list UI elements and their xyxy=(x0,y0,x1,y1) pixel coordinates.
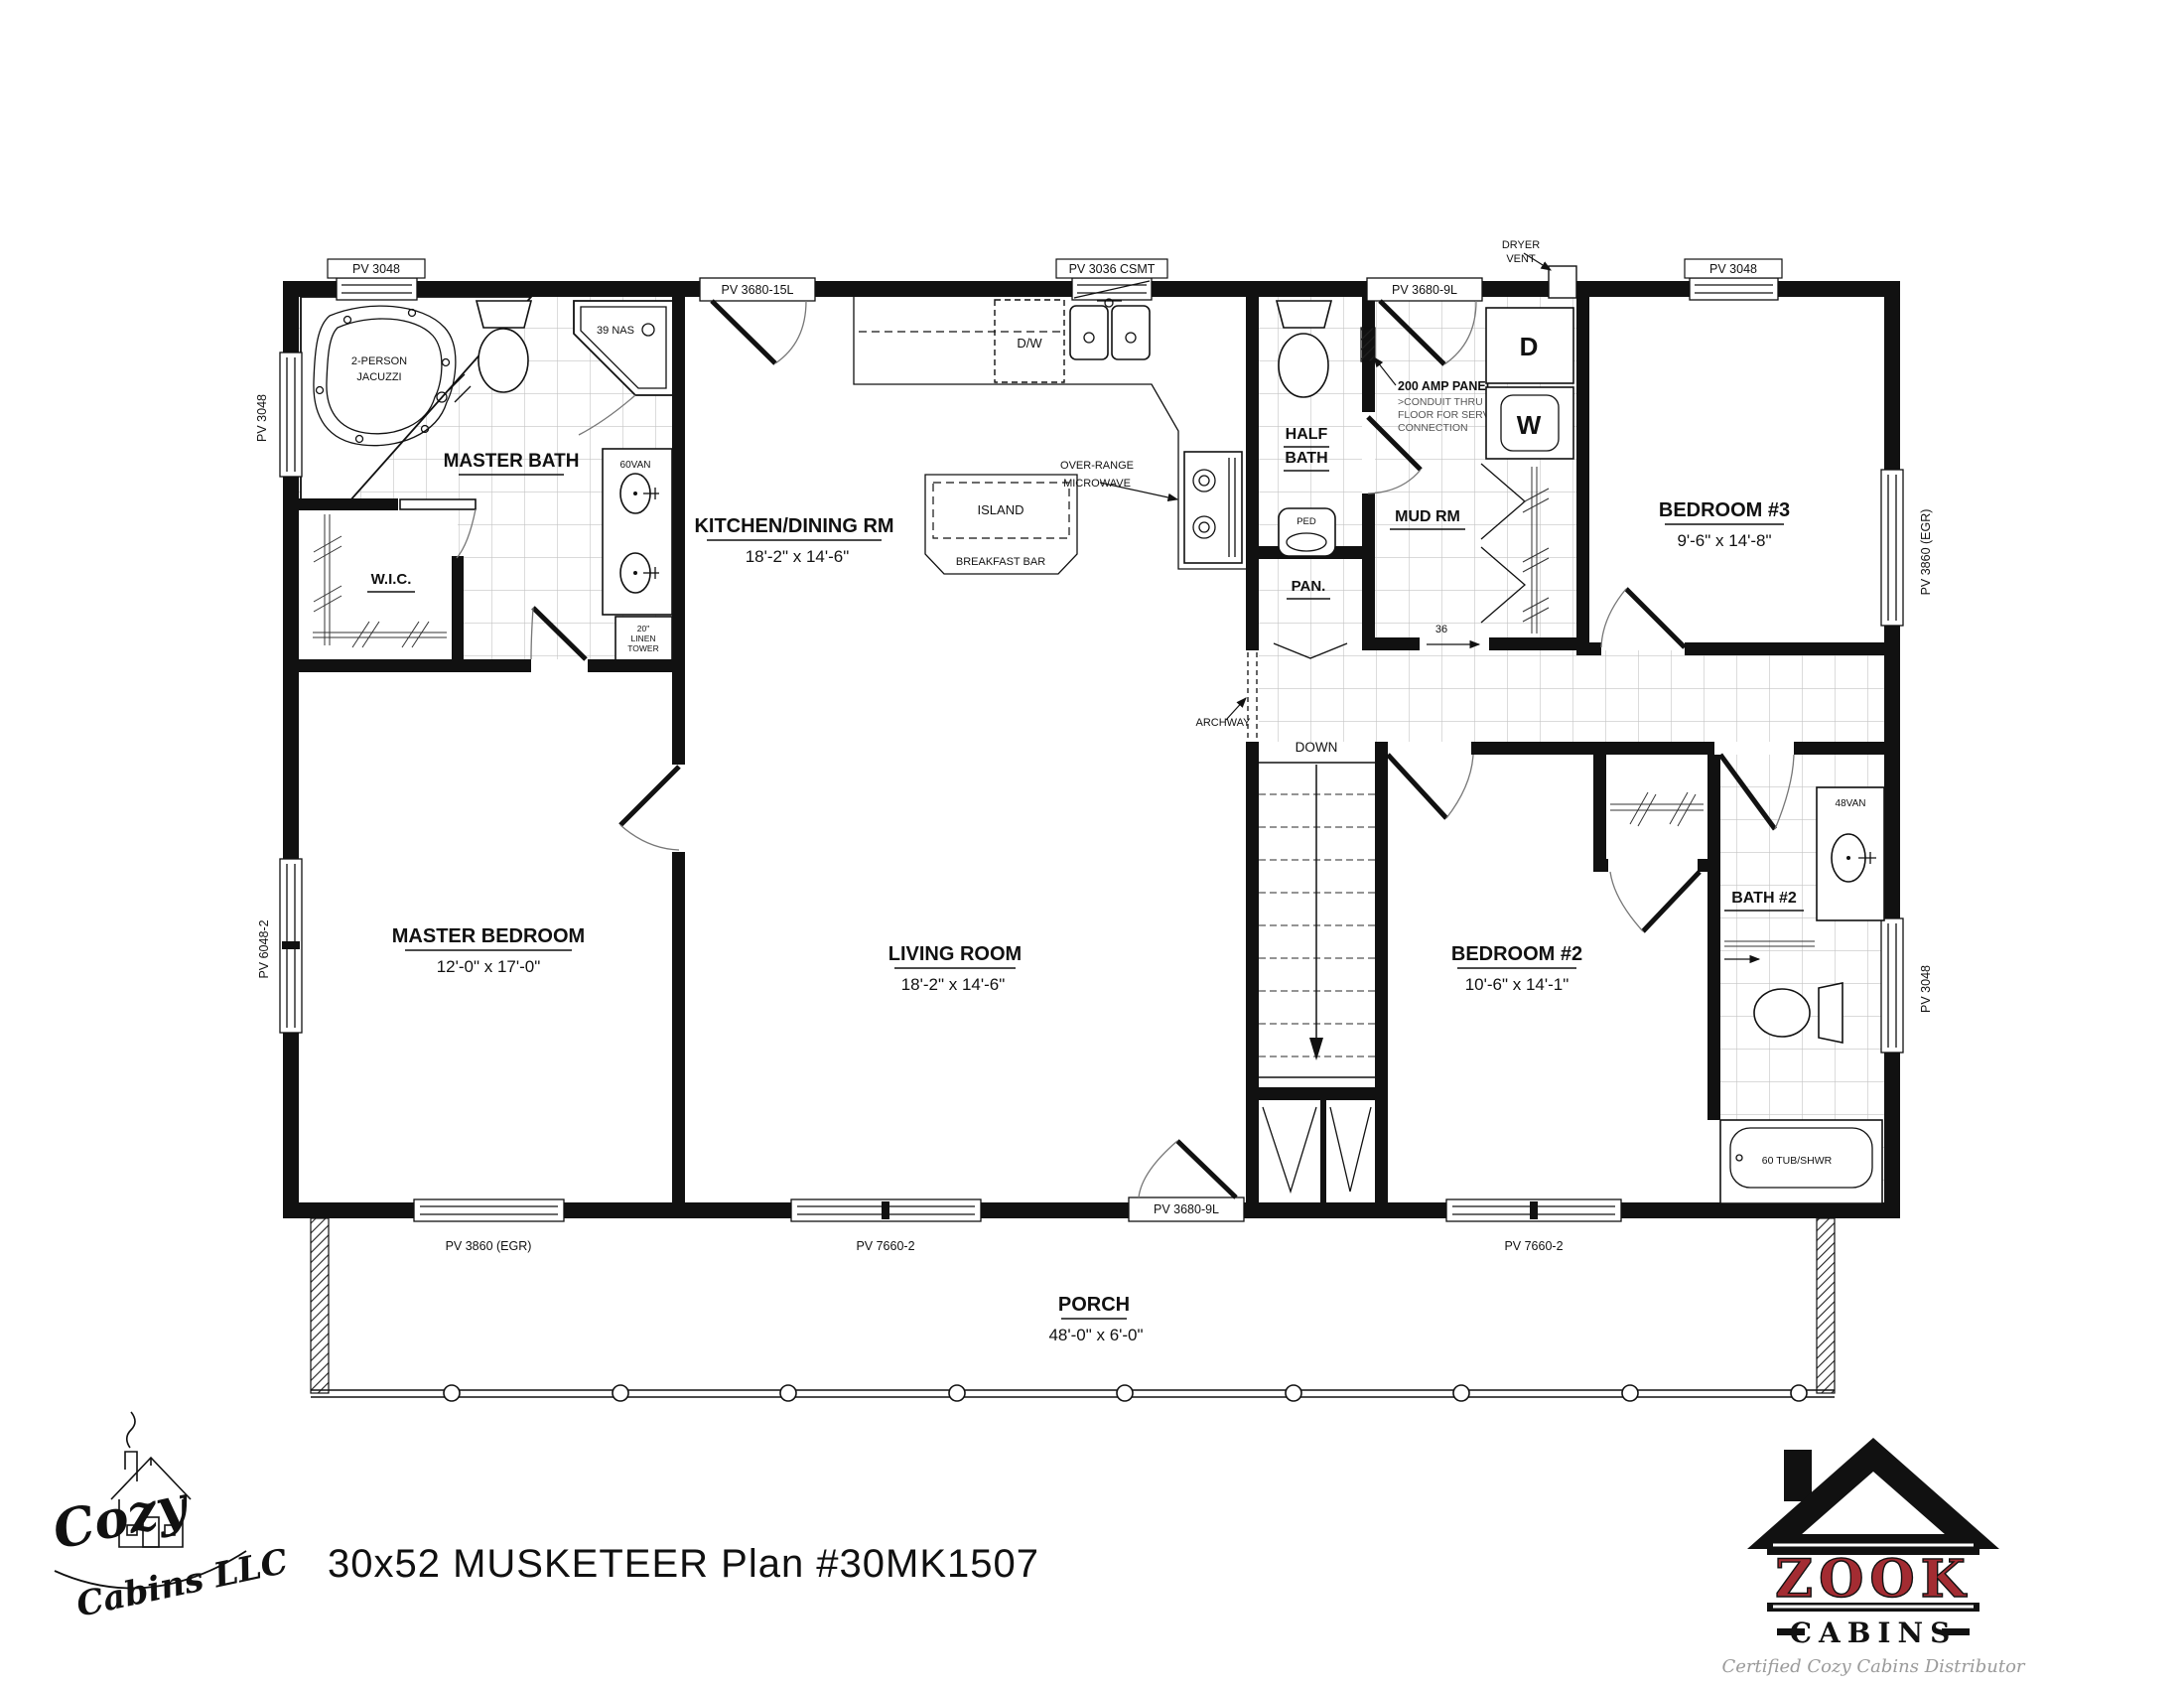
ped-label: PED xyxy=(1297,516,1316,527)
washer-dryer: D W xyxy=(1486,308,1573,459)
room-label-wic: W.I.C. xyxy=(371,571,412,588)
window-right-bed3: PV 3860 (EGR) xyxy=(1881,470,1933,626)
window-label: PV 6048-2 xyxy=(257,919,271,978)
window-left-bath: PV 3048 xyxy=(255,352,302,477)
microwave-note: OVER-RANGE MICROWAVE xyxy=(1060,460,1177,499)
room-dim-porch: 48'-0" x 6'-0" xyxy=(1048,1326,1143,1344)
room-label-mud-rm: MUD RM xyxy=(1395,508,1460,525)
microwave-label-2: MICROWAVE xyxy=(1063,478,1131,490)
bedroom2-closet xyxy=(1610,792,1704,931)
panel-label-1: 200 AMP PANEL xyxy=(1398,379,1494,393)
stairs-down-label: DOWN xyxy=(1296,740,1338,755)
window-label: PV 3048 xyxy=(352,262,400,276)
door-top-kitchen: PV 3680-15L xyxy=(700,278,815,363)
kitchen-sink xyxy=(1070,299,1150,359)
panel-label-2: >CONDUIT THRU xyxy=(1398,396,1483,408)
window-bottom-master: PV 3860 (EGR) xyxy=(414,1199,564,1253)
cozy-logo-line2: Cabins LLC xyxy=(73,1542,292,1625)
bedroom3-door xyxy=(1601,589,1685,647)
room-label-living: LIVING ROOM xyxy=(888,943,1022,965)
vanity60-label: 60VAN xyxy=(620,460,651,471)
door-label: PV 3680-9L xyxy=(1154,1202,1219,1216)
jacuzzi-label-2: JACUZZI xyxy=(356,371,401,383)
room-label-half-bath-1: HALF xyxy=(1286,426,1328,443)
room-dim-master-bedroom: 12'-0" x 17'-0" xyxy=(437,957,541,976)
room-dim-living: 18'-2" x 14'-6" xyxy=(901,975,1006,994)
window-right-bath2: PV 3048 xyxy=(1881,918,1933,1053)
linen-label-2: LINEN xyxy=(630,633,655,643)
window-bottom-bed2: PV 7660-2 xyxy=(1446,1199,1621,1253)
room-label-porch: PORCH xyxy=(1058,1294,1130,1316)
toilet-master-bath xyxy=(477,301,531,392)
window-label: PV 3036 CSMT xyxy=(1069,262,1156,276)
room-label-bedroom3: BEDROOM #3 xyxy=(1659,499,1790,521)
room-dim-kitchen: 18'-2" x 14'-6" xyxy=(746,547,850,566)
room-label-master-bath: MASTER BATH xyxy=(444,451,580,472)
room-label-bedroom2: BEDROOM #2 xyxy=(1451,943,1582,965)
zook-logo-tagline: Certified Cozy Cabins Distributor xyxy=(1721,1656,2025,1677)
island: ISLAND BREAKFAST BAR xyxy=(925,475,1077,574)
door-bottom-porch: PV 3680-9L xyxy=(1129,1141,1244,1221)
tub-label: 60 TUB/SHWR xyxy=(1762,1155,1833,1167)
panel-label-4: CONNECTION xyxy=(1398,422,1468,434)
door-label: PV 3680-9L xyxy=(1392,283,1457,297)
window-label: PV 3048 xyxy=(255,394,269,442)
cozy-cabins-logo: Cozy Cabins LLC xyxy=(48,1412,291,1625)
archway-label: ARCHWAY xyxy=(1196,717,1252,729)
understair-closets xyxy=(1263,1107,1371,1192)
opening36-label: 36 xyxy=(1435,624,1447,635)
vanity48-label: 48VAN xyxy=(1836,798,1866,809)
window-label: PV 7660-2 xyxy=(1504,1239,1563,1253)
window-label: PV 3048 xyxy=(1919,965,1933,1013)
master-bedroom-door xyxy=(620,767,679,850)
zook-logo-name: ZOOK xyxy=(1775,1549,1972,1610)
dryer-vent-label-1: DRYER xyxy=(1502,239,1540,251)
ped-sink: PED xyxy=(1279,508,1335,556)
dryer-vent-label-2: VENT xyxy=(1506,253,1536,265)
shower-label: 39 NAS xyxy=(597,325,634,337)
plan-title: 30x52 MUSKETEER Plan #30MK1507 xyxy=(328,1542,1039,1586)
linen-label-3: TOWER xyxy=(627,643,658,653)
page: PV 3048 PV 3680-15L PV 3036 CSMT PV 3680… xyxy=(0,0,2184,1688)
washer-unit-label: W xyxy=(1517,410,1542,440)
stairs: DOWN xyxy=(1259,740,1375,1077)
dishwasher-label: D/W xyxy=(1017,336,1042,351)
toilet-half-bath xyxy=(1277,301,1331,397)
dryer-unit-label: D xyxy=(1520,332,1539,361)
floorplan-canvas: PV 3048 PV 3680-15L PV 3036 CSMT PV 3680… xyxy=(0,0,2184,1688)
room-dim-bedroom2: 10'-6" x 14'-1" xyxy=(1465,975,1570,994)
window-label: PV 7660-2 xyxy=(856,1239,914,1253)
zook-logo-sub: CABINS xyxy=(1790,1617,1958,1649)
microwave-label-1: OVER-RANGE xyxy=(1060,460,1134,472)
window-top-kitchen: PV 3036 CSMT xyxy=(1056,259,1167,300)
room-label-master-bedroom: MASTER BEDROOM xyxy=(392,925,585,947)
linen-label-1: 20" xyxy=(637,624,649,633)
island-label: ISLAND xyxy=(978,502,1024,517)
window-label: PV 3048 xyxy=(1709,262,1757,276)
window-label: PV 3860 (EGR) xyxy=(1919,509,1933,596)
window-left-master: PV 6048-2 xyxy=(257,859,302,1033)
zook-cabins-logo: ZOOK CABINS Certified Cozy Cabins Distri… xyxy=(1721,1438,2025,1677)
kitchen-range xyxy=(1184,452,1242,563)
window-top-bed3: PV 3048 xyxy=(1685,259,1782,300)
room-dim-bedroom3: 9'-6" x 14'-8" xyxy=(1677,531,1771,550)
room-label-pantry: PAN. xyxy=(1292,578,1326,595)
room-label-kitchen: KITCHEN/DINING RM xyxy=(694,515,893,537)
window-label: PV 3860 (EGR) xyxy=(446,1239,532,1253)
room-label-half-bath-2: BATH xyxy=(1285,450,1327,467)
archway: ARCHWAY xyxy=(1196,652,1258,740)
bedroom2-door xyxy=(1388,755,1473,818)
window-top-left: PV 3048 xyxy=(328,259,425,300)
window-bottom-living: PV 7660-2 xyxy=(791,1199,981,1253)
room-label-bath2: BATH #2 xyxy=(1731,890,1797,907)
breakfast-bar-label: BREAKFAST BAR xyxy=(956,556,1045,568)
door-label: PV 3680-15L xyxy=(722,283,794,297)
jacuzzi-label-1: 2-PERSON xyxy=(351,355,407,367)
cozy-logo-line1: Cozy xyxy=(48,1474,196,1562)
